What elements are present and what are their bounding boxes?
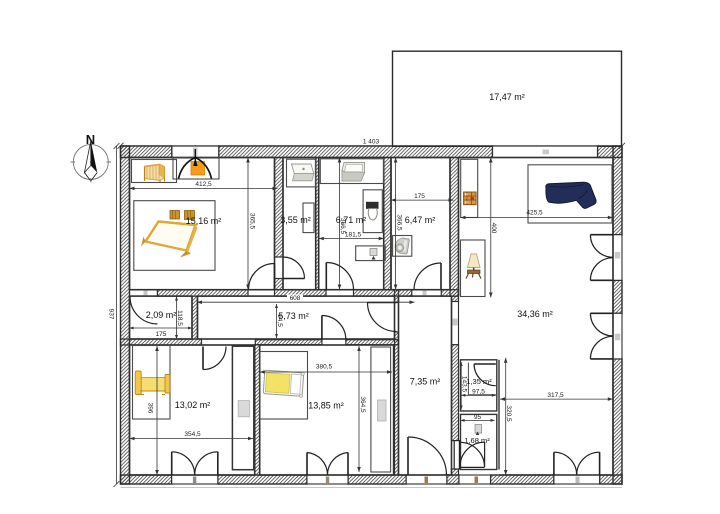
svg-text:937: 937 xyxy=(108,309,115,320)
svg-text:366,5: 366,5 xyxy=(339,218,346,235)
svg-text:175: 175 xyxy=(414,193,425,200)
svg-text:396: 396 xyxy=(147,403,154,414)
svg-text:1,68 m²: 1,68 m² xyxy=(464,436,490,445)
svg-text:412,5: 412,5 xyxy=(195,181,212,188)
svg-text:365,5: 365,5 xyxy=(249,213,256,230)
svg-text:1,35 m²: 1,35 m² xyxy=(466,377,492,386)
svg-text:380,5: 380,5 xyxy=(316,364,333,371)
svg-text:143,5: 143,5 xyxy=(460,376,467,393)
svg-text:97,5: 97,5 xyxy=(472,389,485,396)
svg-text:34,36 m²: 34,36 m² xyxy=(517,309,553,319)
svg-text:118,5: 118,5 xyxy=(176,310,183,326)
svg-text:2,09 m²: 2,09 m² xyxy=(146,310,177,320)
svg-text:366,5: 366,5 xyxy=(396,214,403,231)
svg-text:6,47 m²: 6,47 m² xyxy=(405,215,436,225)
svg-text:400: 400 xyxy=(490,223,497,234)
svg-text:7,35 m²: 7,35 m² xyxy=(410,377,441,387)
svg-text:15,16 m²: 15,16 m² xyxy=(186,216,222,226)
svg-text:320,5: 320,5 xyxy=(505,405,512,422)
svg-text:317,5: 317,5 xyxy=(547,392,564,399)
svg-text:95: 95 xyxy=(474,414,482,421)
svg-text:181,5: 181,5 xyxy=(345,232,362,239)
svg-text:3,55 m²: 3,55 m² xyxy=(280,215,311,225)
svg-text:94,5: 94,5 xyxy=(276,314,283,327)
svg-text:1 403: 1 403 xyxy=(363,138,380,145)
svg-text:364,5: 364,5 xyxy=(359,396,366,413)
svg-text:608: 608 xyxy=(290,295,301,302)
svg-text:425,5: 425,5 xyxy=(526,210,543,217)
svg-text:175: 175 xyxy=(156,331,167,338)
svg-text:13,02 m²: 13,02 m² xyxy=(175,400,211,410)
svg-text:13,85 m²: 13,85 m² xyxy=(308,401,344,411)
svg-text:354,5: 354,5 xyxy=(184,431,201,438)
svg-text:17,47 m²: 17,47 m² xyxy=(489,92,525,102)
